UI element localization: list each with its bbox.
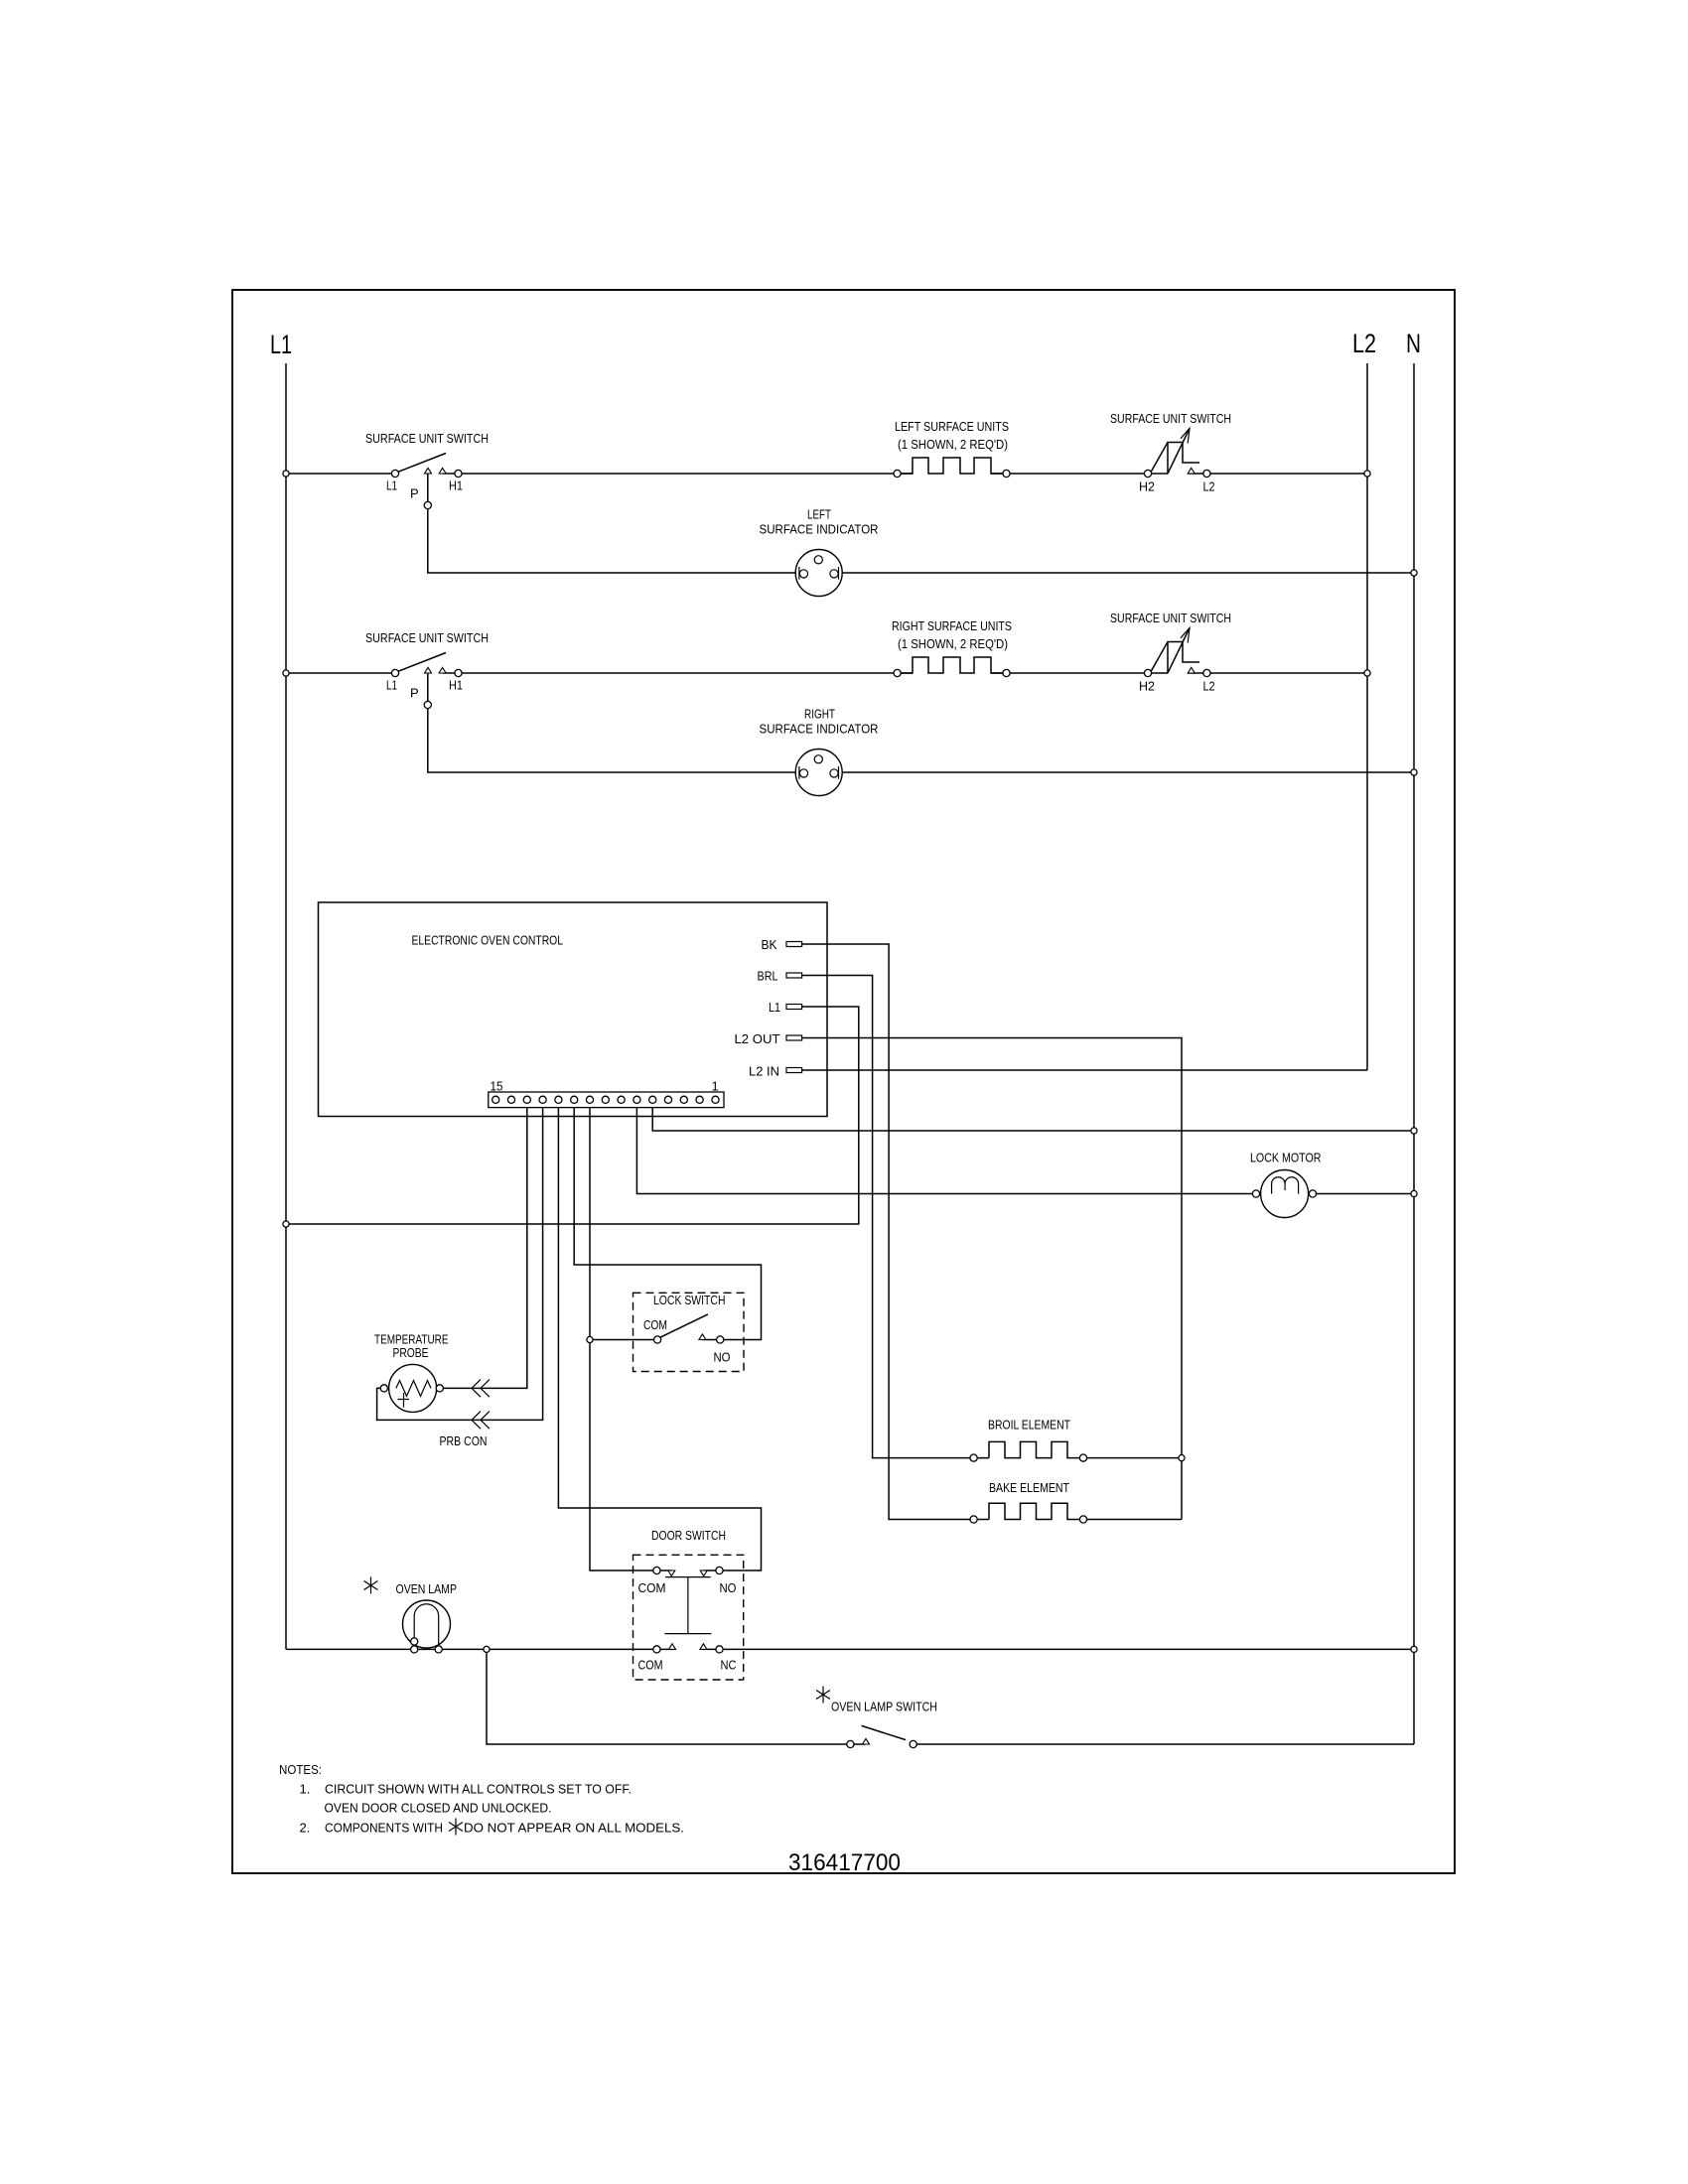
svg-text:LOCK SWITCH: LOCK SWITCH	[653, 1293, 726, 1307]
svg-text:(1 SHOWN, 2 REQ'D): (1 SHOWN, 2 REQ'D)	[898, 437, 1008, 452]
svg-text:OVEN LAMP: OVEN LAMP	[396, 1581, 458, 1596]
svg-text:RIGHT SURFACE UNITS: RIGHT SURFACE UNITS	[892, 618, 1012, 633]
svg-text:L2 OUT: L2 OUT	[735, 1031, 780, 1046]
svg-text:2.: 2.	[300, 1821, 311, 1836]
svg-text:NOTES:: NOTES:	[279, 1762, 322, 1777]
svg-text:LOCK MOTOR: LOCK MOTOR	[1250, 1151, 1322, 1165]
svg-text:LEFT SURFACE UNITS: LEFT SURFACE UNITS	[895, 419, 1009, 434]
svg-text:L1: L1	[270, 330, 292, 359]
svg-text:LEFT: LEFT	[807, 507, 831, 522]
svg-text:(1 SHOWN, 2 REQ'D): (1 SHOWN, 2 REQ'D)	[898, 636, 1008, 651]
svg-text:OVEN LAMP SWITCH: OVEN LAMP SWITCH	[831, 1700, 937, 1714]
svg-text:L2 IN: L2 IN	[749, 1064, 779, 1079]
svg-text:BROIL ELEMENT: BROIL ELEMENT	[988, 1418, 1070, 1433]
svg-text:BK: BK	[762, 937, 777, 952]
svg-text:1: 1	[712, 1079, 719, 1094]
svg-text:SURFACE UNIT SWITCH: SURFACE UNIT SWITCH	[365, 630, 489, 645]
svg-text:NO: NO	[714, 1350, 731, 1365]
svg-text:BRL: BRL	[758, 969, 778, 984]
svg-text:NO: NO	[720, 1580, 737, 1595]
svg-text:OVEN DOOR CLOSED AND UNLOCKED.: OVEN DOOR CLOSED AND UNLOCKED.	[325, 1801, 552, 1816]
svg-text:SURFACE INDICATOR: SURFACE INDICATOR	[760, 722, 879, 737]
svg-text:DOOR SWITCH: DOOR SWITCH	[651, 1528, 726, 1543]
svg-text:PRB CON: PRB CON	[440, 1433, 488, 1448]
svg-text:COM: COM	[643, 1317, 667, 1332]
svg-text:NC: NC	[721, 1658, 737, 1673]
svg-text:BAKE ELEMENT: BAKE ELEMENT	[989, 1480, 1069, 1495]
svg-text:L2: L2	[1352, 329, 1376, 358]
svg-text:PROBE: PROBE	[393, 1345, 429, 1360]
svg-text:N: N	[1406, 329, 1421, 358]
svg-text:SURFACE UNIT SWITCH: SURFACE UNIT SWITCH	[365, 431, 489, 446]
svg-text:SURFACE UNIT SWITCH: SURFACE UNIT SWITCH	[1110, 411, 1231, 426]
svg-text:15: 15	[491, 1079, 503, 1094]
svg-text:SURFACE UNIT SWITCH: SURFACE UNIT SWITCH	[1110, 611, 1231, 625]
svg-text:316417700: 316417700	[788, 1849, 901, 1876]
svg-text:COM: COM	[638, 1580, 666, 1595]
svg-text:1.: 1.	[300, 1782, 311, 1797]
svg-text:COMPONENTS WITH: COMPONENTS WITH	[325, 1821, 443, 1836]
svg-text:L1: L1	[769, 1000, 780, 1015]
svg-text:CIRCUIT SHOWN WITH ALL CONTROL: CIRCUIT SHOWN WITH ALL CONTROLS SET TO O…	[325, 1782, 632, 1797]
svg-text:ELECTRONIC OVEN CONTROL: ELECTRONIC OVEN CONTROL	[412, 933, 564, 948]
svg-text:RIGHT: RIGHT	[804, 707, 835, 722]
svg-text:SURFACE INDICATOR: SURFACE INDICATOR	[760, 522, 879, 537]
svg-text:DO NOT APPEAR ON ALL MODELS.: DO NOT APPEAR ON ALL MODELS.	[464, 1821, 684, 1836]
svg-text:COM: COM	[638, 1658, 663, 1673]
